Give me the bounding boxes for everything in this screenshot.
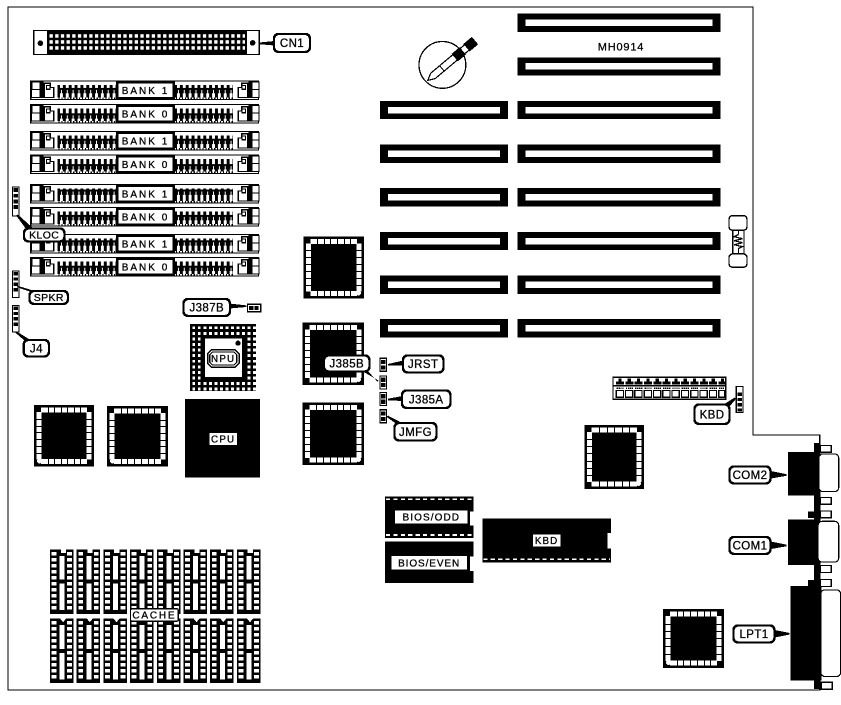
svg-text:KBD: KBD — [535, 536, 558, 547]
svg-text:LPT1: LPT1 — [739, 629, 768, 641]
svg-text:J385A: J385A — [409, 394, 444, 406]
svg-text:COM2: COM2 — [733, 470, 768, 482]
svg-text:COM1: COM1 — [733, 541, 768, 553]
svg-text:J387B: J387B — [189, 303, 224, 315]
svg-text:BIOS/ODD: BIOS/ODD — [402, 513, 460, 524]
svg-text:BANK 1: BANK 1 — [122, 86, 170, 97]
svg-text:CN1: CN1 — [280, 38, 304, 50]
svg-text:MH0914: MH0914 — [598, 42, 644, 54]
svg-text:BANK 1: BANK 1 — [122, 137, 170, 148]
svg-text:J385B: J385B — [329, 359, 364, 371]
svg-text:CACHE: CACHE — [132, 611, 176, 622]
svg-text:BANK 0: BANK 0 — [122, 263, 170, 274]
svg-text:JMFG: JMFG — [399, 427, 432, 439]
svg-text:BANK 0: BANK 0 — [122, 110, 170, 121]
svg-text:KLOC: KLOC — [29, 230, 59, 242]
svg-text:BIOS/EVEN: BIOS/EVEN — [398, 558, 460, 569]
svg-text:NPU: NPU — [211, 354, 235, 365]
svg-text:CPU: CPU — [211, 434, 235, 445]
svg-text:BANK 1: BANK 1 — [122, 190, 170, 201]
svg-text:BANK 0: BANK 0 — [122, 213, 170, 224]
svg-text:J4: J4 — [30, 343, 43, 355]
svg-text:BANK 1: BANK 1 — [122, 240, 170, 251]
svg-text:BANK 0: BANK 0 — [122, 160, 170, 171]
svg-text:KBD: KBD — [700, 409, 725, 421]
svg-text:SPKR: SPKR — [34, 292, 64, 304]
svg-text:JRST: JRST — [408, 359, 438, 371]
